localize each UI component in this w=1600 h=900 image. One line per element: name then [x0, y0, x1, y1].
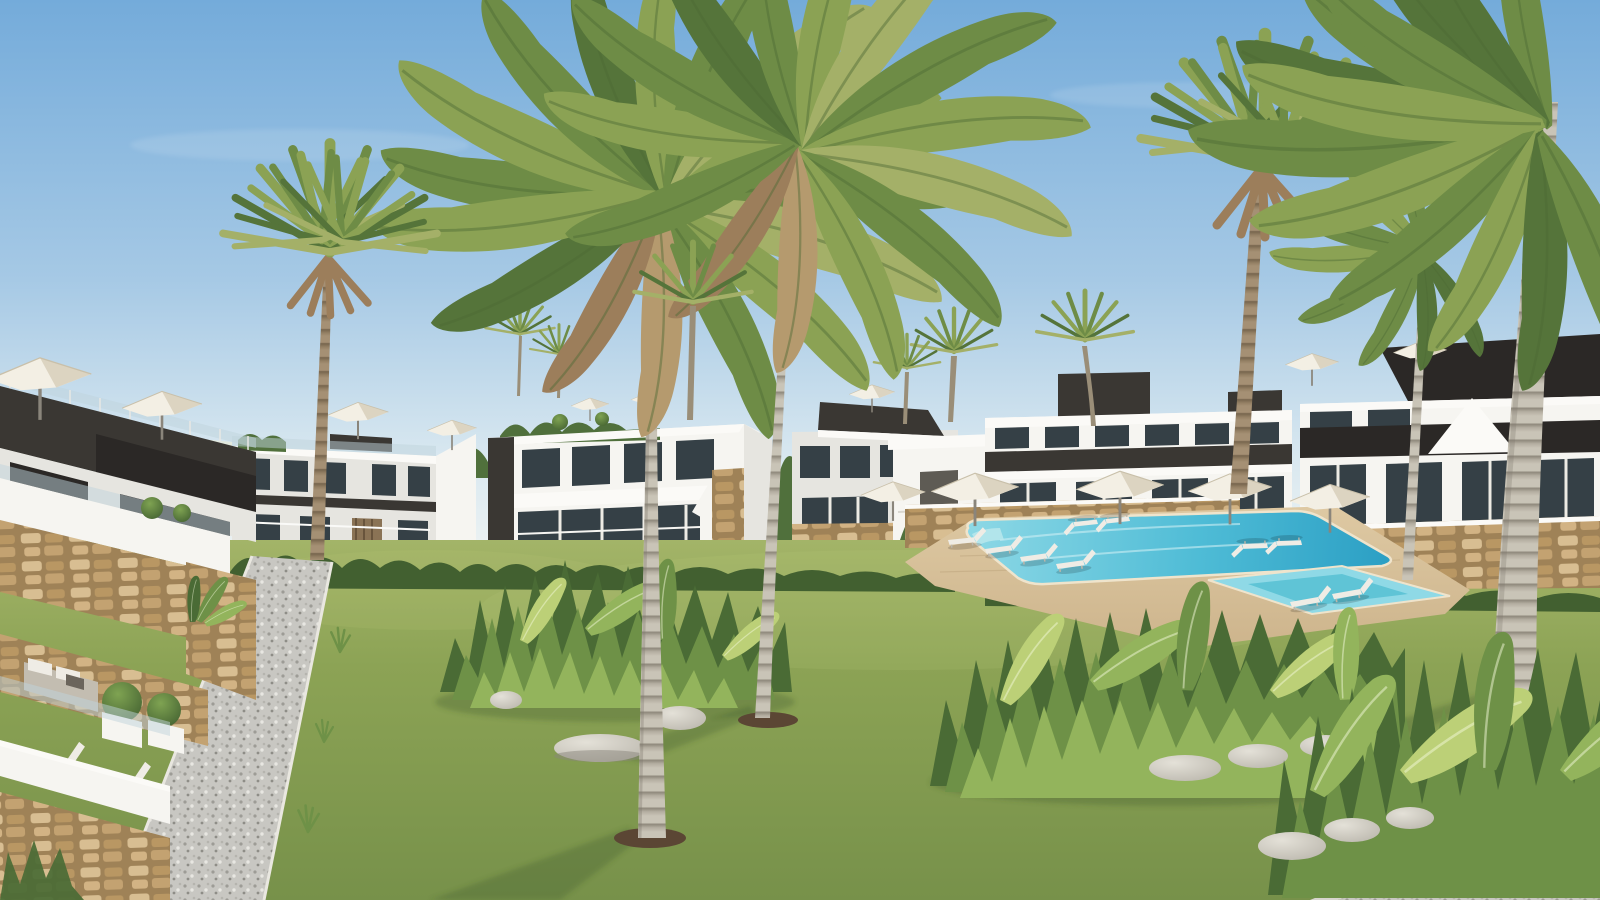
terrace-tree — [141, 497, 163, 519]
boulder — [1228, 744, 1288, 768]
roof-bush — [552, 414, 568, 430]
boulder — [1258, 832, 1326, 860]
roof-volume-small — [1228, 390, 1282, 414]
boulder — [1324, 818, 1380, 842]
boulder — [1386, 807, 1434, 829]
terrace-tree — [173, 504, 191, 522]
boulder-shade — [554, 750, 646, 762]
roof-bush — [595, 412, 609, 426]
render-scene — [0, 0, 1600, 900]
boulder — [1149, 755, 1221, 781]
boulder — [490, 691, 522, 709]
roof-volume — [1058, 372, 1150, 418]
